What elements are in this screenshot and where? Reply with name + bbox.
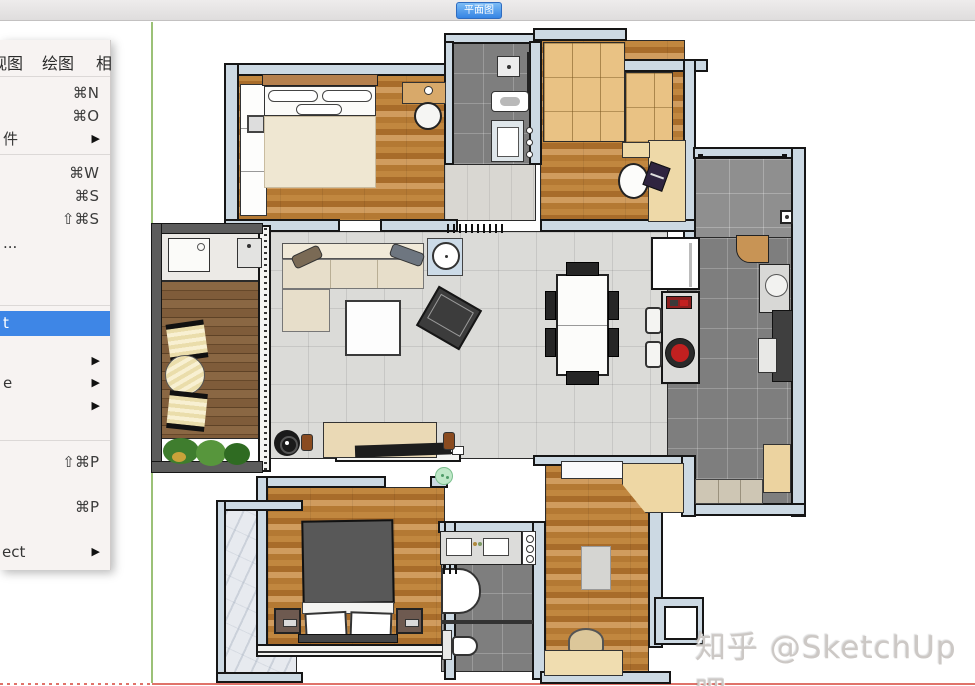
washing-machine: [168, 238, 210, 272]
dining-chair: [608, 328, 619, 357]
plant: [224, 443, 250, 465]
burner: [665, 338, 695, 368]
wall-segment: [688, 503, 806, 516]
bathtub: [441, 568, 481, 614]
scene-tab-floorplan[interactable]: 平面图: [456, 2, 502, 19]
menu-item-save-as[interactable]: ⇧⌘S: [0, 208, 110, 230]
menu-separator: [0, 154, 110, 155]
menu-item-connect[interactable]: ect ▶: [0, 541, 110, 563]
dining-table: [556, 274, 609, 376]
submenu-arrow-icon: ▶: [92, 128, 100, 150]
speaker: [274, 430, 300, 456]
pillow: [322, 90, 372, 102]
toilet-bowl: [452, 636, 478, 656]
menubar-item-camera[interactable]: 相: [96, 50, 112, 72]
dining-chair: [566, 371, 599, 385]
menu-item-print[interactable]: ⌘P: [0, 496, 110, 518]
watermark: 知乎 @SketchUp吧: [695, 622, 975, 686]
desk: [622, 142, 650, 158]
partition: [441, 620, 533, 624]
menubar-item-view[interactable]: 视图: [0, 50, 23, 72]
menu-item-page-setup[interactable]: ⇧⌘P: [0, 451, 110, 473]
file-menu-panel: 视图 绘图 相 ⌘N ⌘O 件 ▶ ⌘W ⌘S ⇧⌘S ... t ▶ e ▶ …: [0, 40, 111, 570]
knob-panel: [522, 531, 536, 565]
dining-chair: [545, 291, 556, 320]
bed-blanket: [264, 116, 376, 188]
menu-item-submenu-b[interactable]: e ▶: [0, 372, 110, 394]
menu-item-close[interactable]: ⌘W: [0, 162, 110, 184]
wall-segment: [444, 33, 541, 44]
desk: [544, 650, 623, 676]
bath-shelf: [443, 565, 461, 574]
pillow: [296, 104, 342, 115]
cup: [424, 86, 433, 95]
nightstand: [396, 608, 423, 634]
rug: [581, 546, 611, 590]
stool: [645, 307, 662, 334]
submenu-arrow-icon: ▶: [92, 541, 100, 563]
submenu-arrow-icon: ▶: [92, 372, 100, 394]
scene-tab-bar: 平面图: [0, 0, 975, 21]
menu-item-open-recent[interactable]: 件 ▶: [0, 128, 110, 150]
menu-item-open[interactable]: ⌘O: [0, 105, 110, 127]
menu-item-submenu-a[interactable]: ▶: [0, 350, 110, 372]
submenu-arrow-icon: ▶: [92, 395, 100, 417]
menu-item-highlighted[interactable]: t: [0, 311, 110, 336]
door-hinge: [782, 154, 787, 159]
round-table: [165, 355, 205, 395]
window-wall-master: [256, 644, 448, 657]
shower-head: [497, 56, 520, 77]
closet: [240, 84, 267, 216]
floor-grille: [447, 224, 505, 233]
menu-separator: [0, 76, 110, 77]
bathtub: [491, 91, 529, 112]
nightstand: [274, 608, 301, 634]
master-bed-blanket: [301, 519, 394, 605]
red-appliance: [666, 296, 692, 309]
counter: [759, 264, 790, 313]
balcony-wall: [151, 223, 263, 234]
lock-icon: [780, 210, 793, 224]
cutting-board: [736, 235, 769, 263]
wall-segment: [529, 41, 542, 165]
wardrobe: [543, 42, 625, 142]
floor-entry: [694, 158, 792, 238]
menu-separator: [0, 440, 110, 441]
wall-segment: [216, 500, 303, 511]
wall-segment: [216, 500, 226, 683]
balcony-sink: [237, 238, 262, 268]
stool-brown: [301, 434, 313, 451]
dishwasher: [758, 338, 777, 373]
dining-chair: [608, 291, 619, 320]
balcony-wall: [151, 223, 162, 473]
door-hinge: [698, 154, 703, 159]
stool: [414, 102, 442, 130]
knob: [526, 139, 533, 146]
dining-chair: [566, 262, 599, 276]
doormat: [695, 479, 763, 504]
floor-hall-top: [444, 164, 536, 221]
menu-item-save-template[interactable]: ...: [0, 232, 110, 254]
fan: [432, 242, 460, 270]
menu-item-submenu-c[interactable]: ▶: [0, 395, 110, 417]
stool-brown: [443, 432, 455, 450]
floorplan-canvas[interactable]: [0, 0, 975, 686]
plant: [172, 452, 186, 462]
menu-item-save[interactable]: ⌘S: [0, 185, 110, 207]
cabinet: [763, 444, 791, 493]
toilet-tank: [442, 630, 452, 660]
dining-chair: [545, 328, 556, 357]
vanity-counter: [440, 531, 522, 565]
fridge: [651, 237, 700, 290]
knob: [526, 151, 533, 158]
menu-item-new[interactable]: ⌘N: [0, 82, 110, 104]
plant: [196, 440, 226, 466]
lounge-chair: [166, 390, 208, 432]
plant-ball: [435, 467, 453, 485]
knob: [526, 127, 533, 134]
master-headboard: [298, 634, 398, 643]
menubar-item-draw[interactable]: 绘图: [42, 50, 74, 72]
shelf: [561, 461, 623, 479]
bed-headboard: [262, 74, 378, 86]
wall-segment: [256, 476, 386, 488]
wall-segment: [216, 672, 303, 683]
stool: [645, 341, 662, 368]
pillow: [268, 90, 318, 102]
app-window: 知乎 @SketchUp吧 视图 绘图 相 ⌘N ⌘O 件 ▶ ⌘W ⌘S ⇧⌘…: [0, 0, 975, 686]
wall-segment: [224, 63, 239, 232]
wardrobe: [625, 72, 673, 144]
submenu-arrow-icon: ▶: [92, 350, 100, 372]
wall-segment: [791, 147, 806, 517]
sink-vanity: [491, 120, 524, 162]
menu-separator: [0, 305, 110, 306]
wall-segment: [533, 28, 627, 41]
sofa-chaise: [282, 289, 330, 332]
coffee-table: [345, 300, 401, 356]
door-swing-line: [700, 156, 786, 158]
